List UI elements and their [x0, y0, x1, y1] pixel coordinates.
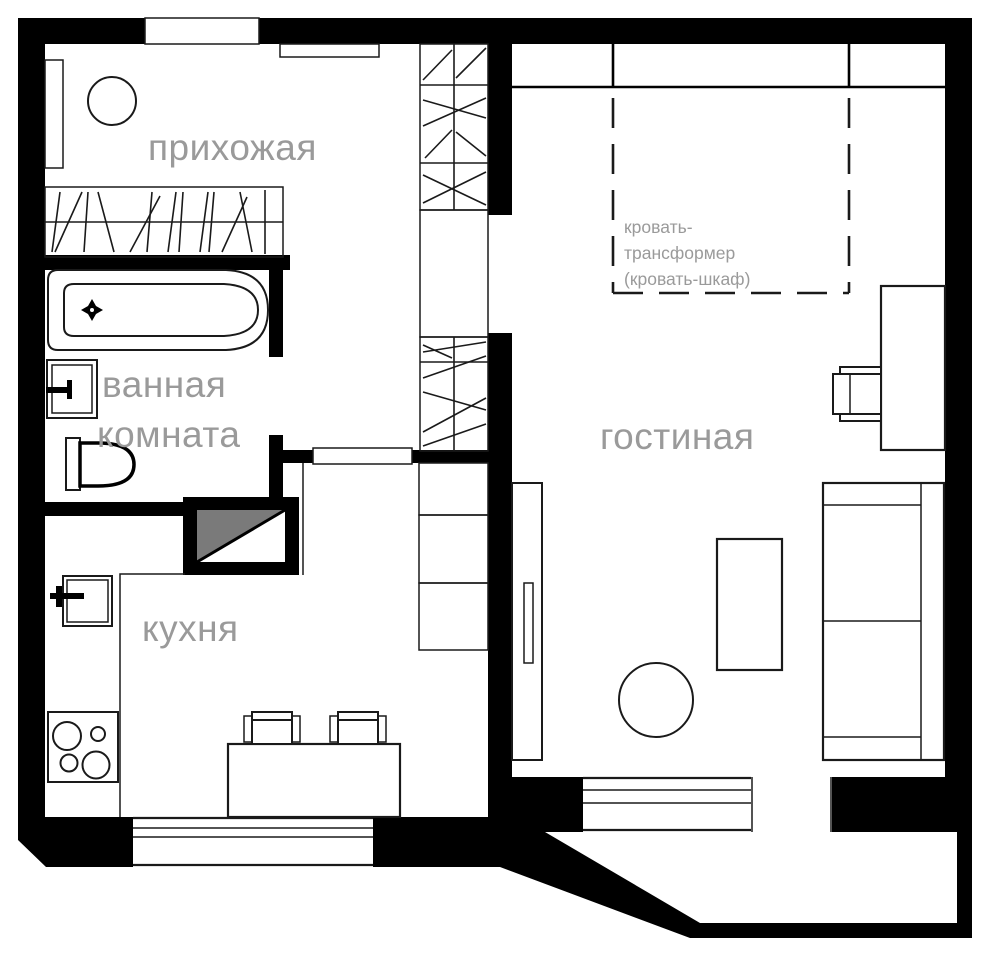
hallway-pouf — [88, 77, 136, 125]
burner-large-2 — [83, 752, 110, 779]
tv-console — [512, 483, 542, 760]
kitchen-chair-2 — [330, 712, 386, 744]
wall-right — [945, 18, 972, 832]
bed-folded-outline — [613, 98, 849, 293]
hallway-ledge — [280, 44, 379, 57]
room-label-hallway: прихожая — [148, 127, 317, 168]
room-label-bathroom-line2: комната — [97, 414, 240, 455]
desk — [881, 286, 945, 450]
kitchen-chair-1 — [244, 712, 300, 744]
wall-living-bottom-left — [512, 777, 583, 832]
wall-living-bottom-right — [832, 777, 962, 832]
bathroom-door-opening — [269, 357, 283, 435]
wall-left — [18, 18, 45, 867]
washing-machine — [183, 463, 303, 575]
floor-plan-page: прихожая ванная комната кухня гостиная к… — [0, 0, 990, 954]
balcony-door-opening — [751, 777, 832, 832]
kitchen-sink — [50, 576, 112, 626]
entrance-door-opening — [145, 18, 259, 44]
burner-small-1 — [91, 727, 105, 741]
stove — [48, 712, 118, 782]
bathtub — [48, 270, 268, 350]
coffee-table — [717, 539, 782, 670]
living-room-door-opening — [488, 215, 512, 333]
hallway-wardrobe — [45, 187, 283, 257]
bed-note-line3: (кровать-шкаф) — [624, 269, 750, 289]
wall-hall-living — [488, 44, 512, 832]
desk-chair — [833, 367, 881, 421]
bed-wardrobe-cabinet — [512, 44, 945, 87]
burner-large-1 — [53, 722, 81, 750]
round-pouf — [619, 663, 693, 737]
burner-small-2 — [61, 755, 78, 772]
kitchen-table — [228, 744, 400, 817]
room-label-bathroom-line1: ванная — [102, 364, 226, 405]
bed-note-line1: кровать- — [624, 217, 693, 237]
hallway-mirror-shelf — [45, 60, 63, 168]
tall-wardrobe — [420, 44, 488, 451]
washbasin — [46, 360, 97, 418]
kitchen-window — [133, 817, 373, 867]
tall-wardrobe-middle — [420, 210, 488, 337]
room-label-living: гостиная — [600, 416, 754, 457]
living-room — [512, 44, 945, 760]
sofa — [823, 483, 944, 760]
wall-bathroom-bottom — [45, 502, 192, 516]
bed-note-line2: трансформер — [624, 243, 735, 263]
living-room-window — [583, 777, 751, 832]
kitchen-passage-opening — [313, 448, 412, 464]
balcony-railing — [500, 832, 972, 938]
floor-plan-svg: прихожая ванная комната кухня гостиная к… — [0, 0, 990, 954]
room-label-kitchen: кухня — [142, 608, 239, 649]
kitchen-cabinet-column — [419, 463, 488, 650]
